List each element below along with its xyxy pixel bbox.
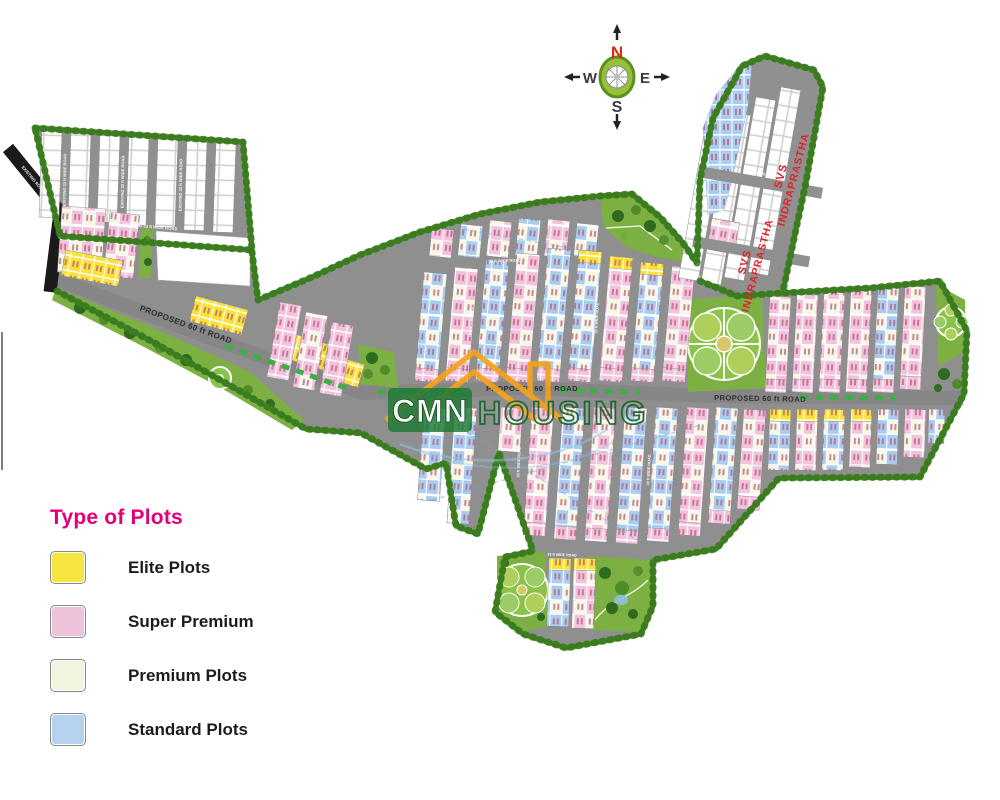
plot-strip [554, 526, 577, 541]
plot-strip [599, 368, 623, 383]
legend-title: Type of Plots [50, 506, 254, 530]
compass-arrow-north [613, 24, 621, 33]
plot-strip [846, 379, 868, 393]
road-label-proposed60-right: PROPOSED 60 ft ROAD [714, 393, 806, 404]
legend-item-standard: Standard Plots [50, 713, 254, 746]
plot-strip [819, 379, 841, 393]
plot-strip [574, 558, 596, 571]
park-bottom-right [588, 556, 652, 632]
watermark-brand-left: CMN [392, 393, 468, 429]
plot-strip [873, 379, 895, 393]
legend-item-elite: Elite Plots [50, 551, 254, 584]
compass-label-s: S [612, 99, 623, 116]
plot-strip [616, 530, 639, 545]
legend-swatch-standard [50, 713, 86, 746]
plot-strip [662, 368, 686, 383]
legend-swatch-premium [50, 659, 86, 692]
compass-label-w: W [583, 70, 598, 87]
plot-strip [851, 409, 872, 422]
plot-strip [429, 228, 454, 258]
road-label-existing-3: EXISTING 33 ft WIDE ROAD [178, 159, 184, 212]
plot-strip [515, 218, 541, 258]
plot-strip [797, 409, 818, 422]
plot-strip [184, 140, 207, 231]
plot-strip [568, 368, 592, 383]
compass-label-n: N [611, 43, 623, 62]
legend-swatch-elite [50, 551, 86, 584]
plot-strip [765, 379, 787, 393]
plot-strip [900, 376, 922, 390]
compass-arrow-south [613, 121, 621, 130]
plot-strip [213, 142, 236, 233]
plot-strip [678, 522, 701, 537]
legend-label-standard: Standard Plots [128, 720, 248, 740]
legend-swatch-super-premium [50, 605, 86, 638]
legend: Type of Plots Elite Plots Super Premium … [50, 506, 254, 746]
legend-label-premium: Premium Plots [128, 666, 247, 686]
plot-strip [903, 409, 926, 458]
plot-strip [458, 224, 483, 258]
plot-strip [486, 220, 512, 258]
compass-arrow-east [661, 73, 670, 81]
legend-label-super-premium: Super Premium [128, 612, 254, 632]
compass-rose: N S W E [564, 24, 670, 130]
plot-strip [708, 510, 731, 525]
plot-strip [631, 368, 655, 383]
plot-strip [792, 379, 814, 393]
compass-arrow-west [564, 73, 573, 81]
park-circular-central [684, 294, 766, 392]
plot-strip [876, 409, 899, 465]
legend-label-elite: Elite Plots [128, 558, 210, 578]
plot-strip [824, 409, 845, 422]
site-layout-map: PROPOSED 60 ft ROAD PROPOSED 60 ft ROAD … [0, 0, 1000, 800]
plot-strip [549, 558, 571, 571]
legend-item-super-premium: Super Premium [50, 605, 254, 638]
legend-item-premium: Premium Plots [50, 659, 254, 692]
road-label-existing-1: EXISTING 33 ft WIDE ROAD [62, 154, 68, 207]
plot-strip [585, 528, 608, 543]
watermark-brand-right: HOUSING [478, 395, 648, 431]
open-parcel [156, 231, 250, 286]
plot-strip [647, 528, 670, 543]
plot-strip [126, 137, 149, 226]
compass-label-e: E [640, 70, 650, 87]
road-label-existing-2: EXISTING 33 ft WIDE ROAD [120, 156, 126, 209]
plot-strip [609, 256, 633, 270]
plot-strip [770, 409, 791, 422]
plot-strip [640, 262, 664, 276]
plot-strip [155, 139, 178, 228]
plot-strip [578, 250, 602, 264]
